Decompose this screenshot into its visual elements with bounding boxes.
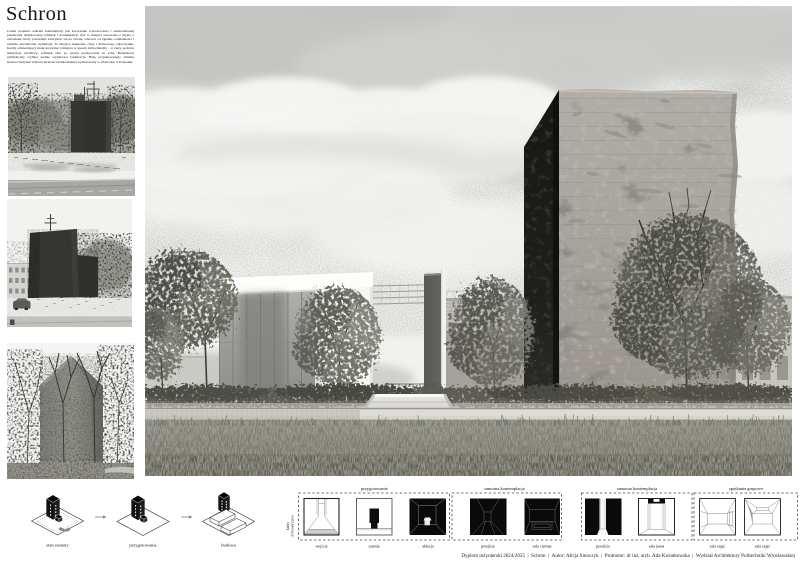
- svg-text:przejście: przejście: [481, 544, 495, 549]
- svg-text:kadry: kadry: [286, 522, 290, 530]
- svg-text:ablucja: ablucja: [422, 544, 434, 549]
- svg-text:sala ciemna: sala ciemna: [533, 544, 552, 549]
- svg-text:szatnia: szatnia: [368, 544, 379, 549]
- svg-text:doświadczenia: doświadczenia: [291, 515, 295, 537]
- svg-text:sala zajęć: sala zajęć: [710, 544, 726, 549]
- svg-text:samotna kontemplacja: samotna kontemplacja: [484, 486, 524, 491]
- svg-text:sala jasna: sala jasna: [649, 544, 665, 549]
- svg-text:sala zajęć: sala zajęć: [755, 544, 771, 549]
- svg-text:wejście: wejście: [316, 544, 328, 549]
- svg-text:przygotowanie: przygotowanie: [129, 543, 156, 548]
- svg-text:przejście: przejście: [596, 544, 610, 549]
- svg-text:stan zastany: stan zastany: [46, 543, 69, 548]
- svg-text:spotkania grupowe: spotkania grupowe: [729, 486, 763, 491]
- svg-text:budowa: budowa: [221, 543, 236, 548]
- svg-text:samotna kontemplacja: samotna kontemplacja: [617, 486, 657, 491]
- svg-text:przygotowanie: przygotowanie: [361, 486, 388, 491]
